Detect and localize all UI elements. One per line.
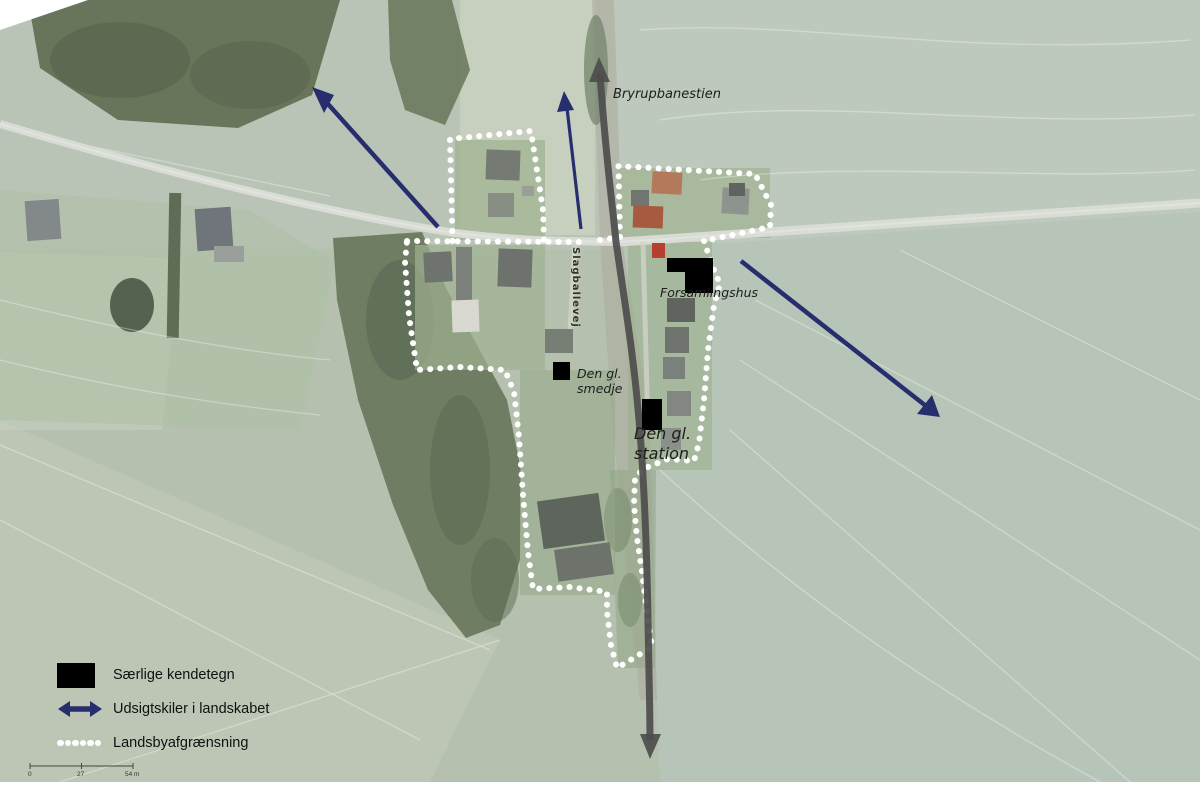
double-arrow-icon xyxy=(57,697,103,721)
scale-end-label: 54 m xyxy=(125,771,139,778)
scale-start-label: 0 xyxy=(28,771,32,778)
old-station-label-line2: station xyxy=(634,444,691,464)
scale-middle-label: 27 xyxy=(77,771,85,778)
legend-label-village-boundary: Landsbyafgrænsning xyxy=(113,735,248,751)
legend-row-view-wedges: Udsigtskiler i landskabet xyxy=(57,692,269,726)
black-rect-swatch xyxy=(57,663,103,688)
old-smithy-label-line2: smedje xyxy=(577,381,622,396)
dotted-line-icon xyxy=(57,740,101,747)
double-arrow-swatch xyxy=(57,697,103,721)
legend-row-special-features: Særlige kendetegn xyxy=(57,658,269,692)
legend-label-view-wedges: Udsigtskiler i landskabet xyxy=(113,701,269,717)
legend-label-special-features: Særlige kendetegn xyxy=(113,667,235,683)
scale-bar: 0 27 54 m xyxy=(28,761,153,779)
old-smithy-label: Den gl. smedje xyxy=(577,366,622,396)
feature-smedje xyxy=(553,362,570,380)
old-station-label: Den gl. station xyxy=(634,424,691,464)
black-rect-icon xyxy=(57,663,95,688)
old-station-label-line1: Den gl. xyxy=(634,424,691,444)
old-smithy-label-line1: Den gl. xyxy=(577,366,622,381)
community-house-label: Forsamlingshus xyxy=(660,286,758,300)
legend-row-village-boundary: Landsbyafgrænsning xyxy=(57,726,269,760)
legend: Særlige kendetegn Udsigtskiler i landska… xyxy=(57,658,269,760)
trail-label: Bryrupbanestien xyxy=(613,88,721,103)
dotted-line-swatch xyxy=(57,740,103,747)
road-name-label: Slagballevej xyxy=(570,247,581,328)
village-plan-map: Bryrupbanestien Slagballevej Forsamlings… xyxy=(0,0,1200,796)
